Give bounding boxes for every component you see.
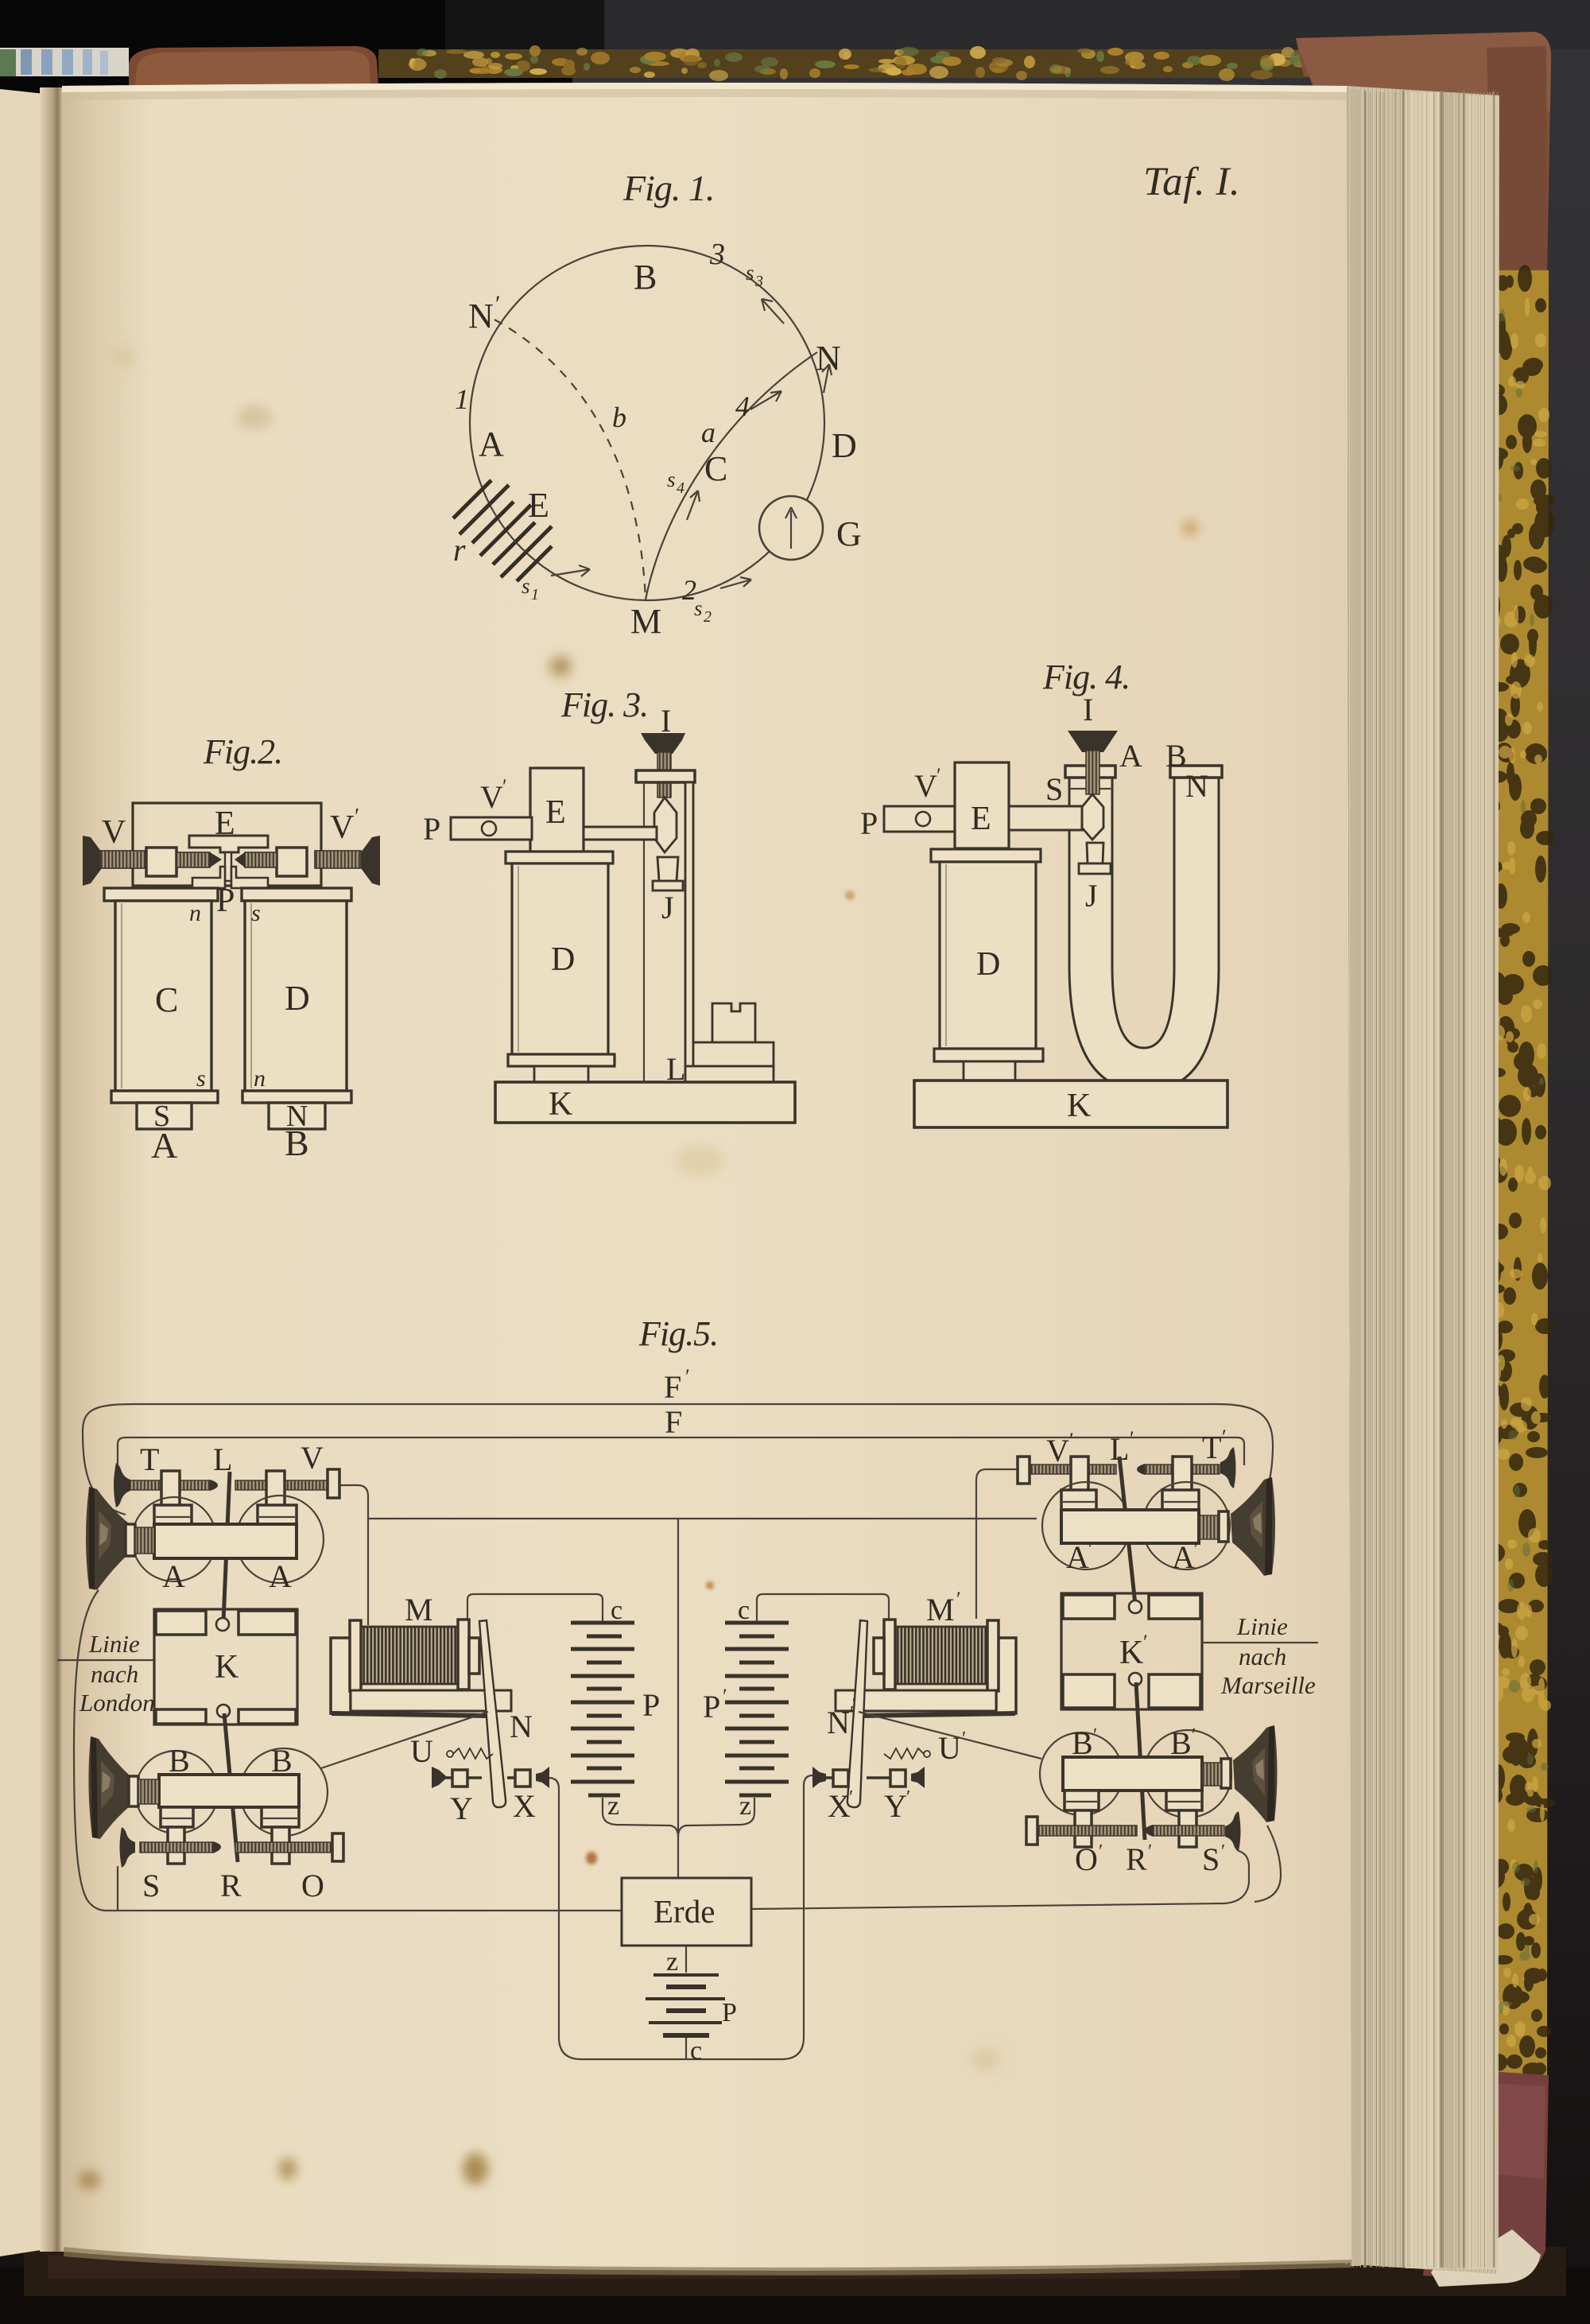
svg-text:A: A	[1066, 1539, 1089, 1575]
svg-text:P: P	[722, 1998, 737, 2027]
svg-text:c: c	[690, 2036, 702, 2066]
svg-text:T: T	[1202, 1430, 1221, 1465]
svg-text:′: ′	[849, 1787, 853, 1808]
svg-text:London: London	[79, 1689, 155, 1717]
svg-text:A: A	[269, 1558, 292, 1594]
svg-text:′: ′	[1093, 1725, 1097, 1746]
svg-text:′: ′	[1222, 1426, 1227, 1449]
svg-text:A: A	[479, 425, 504, 464]
svg-text:3: 3	[754, 273, 763, 290]
svg-text:′: ′	[1099, 1841, 1103, 1862]
svg-text:′: ′	[1192, 1725, 1196, 1746]
svg-text:D: D	[976, 946, 1000, 983]
svg-text:R: R	[220, 1868, 242, 1903]
svg-text:B: B	[634, 258, 657, 297]
svg-text:a: a	[701, 417, 715, 448]
svg-text:3: 3	[709, 238, 725, 271]
svg-text:V: V	[102, 814, 126, 851]
svg-text:nach: nach	[91, 1660, 138, 1688]
svg-text:J: J	[661, 890, 674, 925]
svg-text:z: z	[739, 1791, 751, 1821]
svg-text:G: G	[836, 514, 862, 553]
svg-text:V: V	[301, 1440, 324, 1476]
svg-text:Taf. I.: Taf. I.	[1143, 160, 1240, 204]
svg-text:s: s	[522, 574, 530, 598]
svg-text:r: r	[453, 532, 466, 568]
svg-text:Erde: Erde	[653, 1893, 715, 1930]
svg-text:′: ′	[685, 1365, 690, 1388]
svg-text:′: ′	[1143, 1631, 1148, 1654]
svg-text:N: N	[468, 297, 494, 336]
svg-text:D: D	[285, 979, 310, 1018]
svg-text:c: c	[738, 1596, 750, 1625]
svg-text:z: z	[607, 1791, 619, 1821]
svg-text:z: z	[666, 1947, 678, 1977]
svg-text:V: V	[480, 779, 503, 815]
svg-text:D: D	[551, 941, 575, 978]
svg-text:D: D	[832, 426, 857, 465]
svg-text:M: M	[630, 602, 661, 641]
svg-text:Linie: Linie	[1236, 1612, 1288, 1640]
svg-text:′: ′	[502, 775, 507, 798]
svg-text:E: E	[545, 794, 566, 831]
svg-text:′: ′	[1130, 1427, 1134, 1450]
svg-text:′: ′	[937, 764, 941, 787]
svg-text:N: N	[827, 1705, 850, 1740]
svg-text:A: A	[162, 1558, 185, 1594]
svg-text:Y: Y	[450, 1791, 473, 1826]
svg-text:S: S	[1045, 771, 1063, 807]
svg-text:s: s	[746, 261, 754, 285]
svg-text:C: C	[704, 449, 727, 488]
svg-text:′: ′	[495, 291, 501, 317]
svg-text:1: 1	[455, 383, 469, 415]
svg-text:P: P	[860, 805, 878, 841]
svg-text:Fig. 1.: Fig. 1.	[622, 168, 714, 208]
svg-text:N: N	[510, 1709, 533, 1744]
svg-text:R: R	[1126, 1841, 1147, 1877]
svg-text:V: V	[330, 809, 354, 846]
svg-text:E: E	[971, 801, 991, 837]
svg-text:′: ′	[1069, 1429, 1074, 1452]
svg-text:P: P	[703, 1689, 720, 1725]
svg-text:S: S	[1202, 1841, 1220, 1877]
svg-text:A: A	[1172, 1539, 1195, 1575]
svg-text:N: N	[816, 339, 841, 378]
svg-text:′: ′	[1148, 1841, 1152, 1862]
svg-text:′: ′	[1221, 1841, 1225, 1862]
svg-text:2: 2	[704, 608, 712, 626]
svg-text:4: 4	[677, 479, 684, 497]
svg-text:E: E	[528, 486, 549, 525]
svg-text:U: U	[410, 1733, 433, 1769]
svg-text:V: V	[914, 768, 937, 804]
svg-text:Y: Y	[884, 1788, 907, 1824]
svg-text:K: K	[549, 1086, 572, 1123]
svg-text:′: ′	[956, 1588, 961, 1611]
svg-text:V: V	[1046, 1433, 1069, 1469]
svg-text:K: K	[1119, 1635, 1143, 1671]
svg-text:Linie: Linie	[88, 1630, 140, 1658]
svg-text:X: X	[513, 1788, 536, 1824]
svg-text:K: K	[215, 1649, 238, 1686]
svg-text:′: ′	[906, 1787, 910, 1808]
svg-text:1: 1	[531, 586, 539, 603]
svg-text:O: O	[301, 1868, 324, 1903]
svg-text:F: F	[665, 1404, 682, 1440]
svg-text:F: F	[664, 1369, 681, 1405]
svg-text:b: b	[612, 402, 626, 433]
svg-text:c: c	[611, 1596, 622, 1625]
svg-text:X: X	[828, 1788, 851, 1824]
svg-text:S: S	[142, 1868, 160, 1903]
svg-text:P: P	[642, 1687, 660, 1723]
svg-text:′: ′	[723, 1685, 727, 1708]
svg-text:P: P	[423, 811, 440, 847]
svg-text:M: M	[926, 1592, 955, 1628]
svg-text:N: N	[1185, 768, 1208, 804]
svg-text:J: J	[1085, 878, 1098, 914]
svg-text:s: s	[196, 1065, 206, 1092]
svg-text:′: ′	[355, 805, 359, 829]
svg-text:T: T	[140, 1441, 159, 1477]
svg-text:A: A	[151, 1125, 177, 1166]
svg-text:′: ′	[850, 1703, 854, 1724]
svg-text:M: M	[405, 1592, 433, 1628]
svg-text:n: n	[189, 900, 201, 926]
svg-text:4: 4	[735, 390, 750, 422]
svg-text:s: s	[251, 900, 261, 926]
svg-text:K: K	[1067, 1088, 1091, 1124]
svg-text:s: s	[694, 596, 703, 620]
svg-text:′: ′	[1088, 1539, 1092, 1560]
svg-text:A: A	[1119, 738, 1142, 774]
svg-text:n: n	[254, 1065, 266, 1092]
svg-text:O: O	[1075, 1841, 1098, 1877]
svg-text:′: ′	[1194, 1539, 1198, 1560]
svg-text:Marseille: Marseille	[1220, 1671, 1316, 1699]
svg-text:Fig. 3.: Fig. 3.	[560, 685, 648, 724]
svg-text:nach: nach	[1239, 1643, 1286, 1670]
svg-text:I: I	[1083, 692, 1093, 727]
svg-text:C: C	[155, 980, 178, 1019]
svg-text:B: B	[285, 1123, 309, 1163]
svg-text:B: B	[1165, 738, 1187, 774]
svg-text:Fig.5.: Fig.5.	[638, 1314, 718, 1353]
svg-text:s: s	[667, 468, 676, 491]
svg-text:Fig.2.: Fig.2.	[203, 732, 282, 771]
svg-text:Fig. 4.: Fig. 4.	[1042, 658, 1130, 696]
